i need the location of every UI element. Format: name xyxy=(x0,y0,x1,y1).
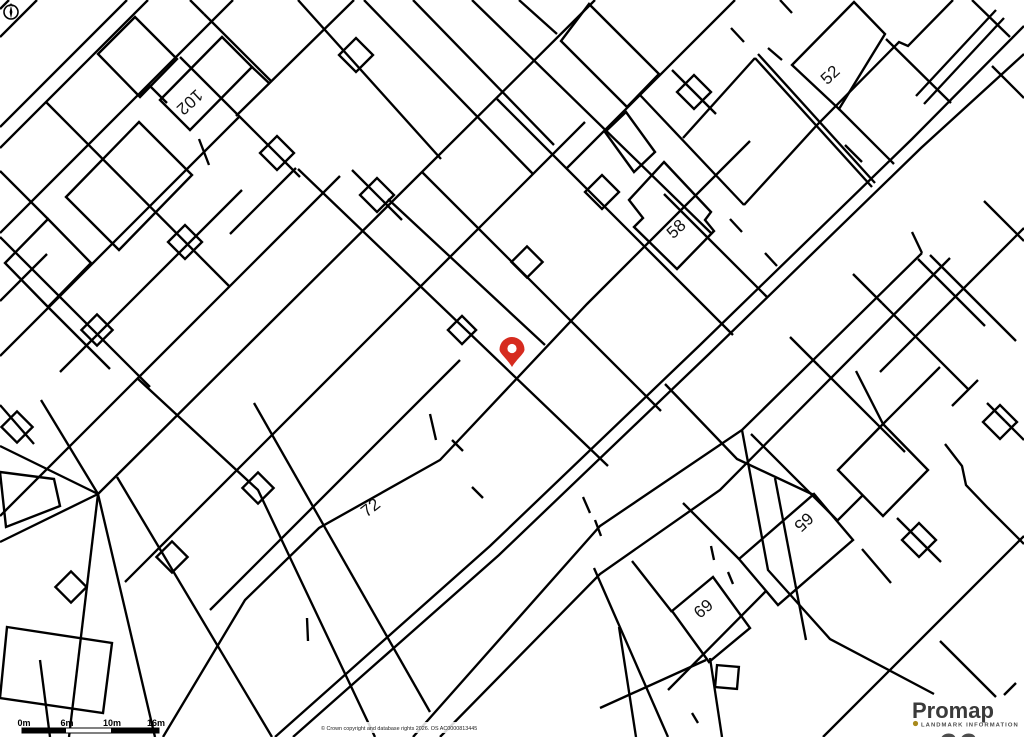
svg-text:16m: 16m xyxy=(147,718,165,728)
svg-text:66: 66 xyxy=(938,726,978,737)
svg-text:Promap: Promap xyxy=(912,698,994,723)
svg-text:10m: 10m xyxy=(103,718,121,728)
svg-text:0m: 0m xyxy=(17,718,30,728)
svg-text:6m: 6m xyxy=(60,718,73,728)
svg-text:© Crown copyright and database: © Crown copyright and database rights 20… xyxy=(321,725,477,732)
